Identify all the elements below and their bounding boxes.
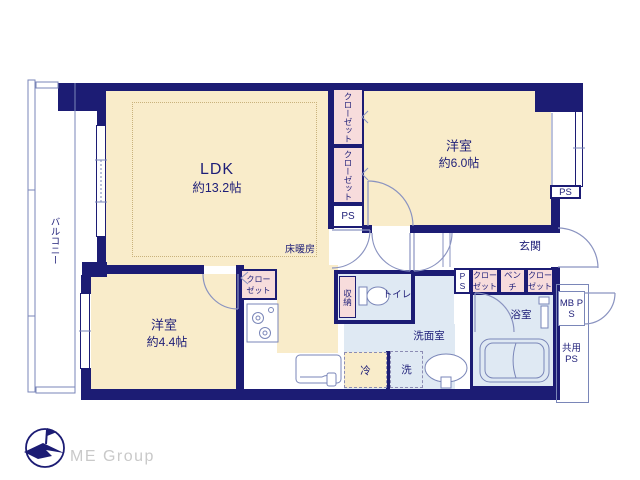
floor-plan: 収納 クローゼット クローゼット PS クローゼット PS クローゼット ベンチ… [0, 0, 640, 480]
washroom-floor-upper [415, 276, 454, 324]
closet-hall2-box: クローゼット [526, 268, 554, 294]
wall-top [58, 83, 583, 91]
wall-ldk-bottom [90, 265, 204, 274]
wall-hall-bottom [415, 270, 455, 276]
bedroom2-size-label: 約4.4帖 [147, 336, 188, 350]
ps-hall-box: PS [454, 268, 471, 294]
shared-ps-label: 共用PS [560, 340, 584, 365]
shared-ps-box: 共用PS [558, 335, 585, 370]
closet-kitchen-box: クローゼット [240, 269, 277, 300]
ps-hall-label: PS [458, 271, 468, 291]
logo-text: ME Group [70, 448, 155, 466]
window-bedroom1 [575, 111, 583, 187]
entrance-step-lines [443, 233, 450, 267]
ps-right-box: PS [550, 185, 581, 199]
wall-bottom [81, 389, 560, 400]
ps-right-label: PS [559, 187, 572, 198]
room-bathroom [470, 292, 556, 389]
closet-hall2-label: クローゼット [528, 270, 552, 292]
toilet-label: トイレ [383, 291, 412, 302]
entrance-label: 玄関 [519, 241, 541, 254]
storage-label: 収納 [342, 289, 354, 306]
ps-column-box: PS [332, 204, 364, 228]
floor-heating-zone [132, 102, 317, 257]
bench-box: ベンチ [499, 268, 526, 294]
ldk-size-label: 約13.2帖 [192, 181, 241, 195]
bedroom2-name-label: 洋室 [151, 319, 177, 334]
bedroom1-name-label: 洋室 [446, 140, 472, 155]
washer-label: 洗 [401, 362, 412, 377]
floor-heating-label: 床暖房 [285, 244, 315, 256]
toilet-storage-box: 収納 [339, 276, 356, 318]
wall-left-upper [97, 91, 106, 126]
closet-v1-label: クローゼット [342, 92, 354, 143]
closet-kitchen-label: クローゼット [244, 274, 274, 296]
fridge-space: 冷 [344, 352, 387, 388]
wall-below-bedroom1-b [410, 225, 560, 233]
ldk-name-label: LDK [200, 161, 234, 179]
fridge-label: 冷 [360, 363, 371, 378]
window-ldk [96, 125, 106, 237]
mb-ps-box: MB PS [558, 291, 585, 326]
closet-column-top: クローゼット [332, 88, 364, 146]
bathroom-label: 浴室 [511, 309, 532, 321]
wall-corner-topright [535, 83, 583, 112]
closet-hall1-label: クローゼット [473, 270, 497, 292]
compass-logo-icon [24, 428, 64, 467]
balcony-label: バルコニー [48, 217, 59, 265]
window-bedroom2 [80, 293, 90, 369]
closet-column-bottom: クローゼット [332, 146, 364, 204]
kitchen-sink-floor [277, 353, 344, 390]
mb-ps-label: MB PS [560, 298, 584, 320]
kitchen-counter-floor [244, 298, 277, 390]
closet-hall1-box: クローゼット [471, 268, 499, 294]
bedroom1-size-label: 約6.0帖 [439, 157, 480, 171]
washroom-label: 洗面室 [413, 330, 445, 342]
washer-space: 洗 [390, 351, 423, 388]
ps-column-label: PS [341, 211, 354, 222]
wall-left-lower-a [81, 275, 91, 294]
closet-v2-label: クローゼット [342, 150, 354, 201]
bench-label: ベンチ [501, 269, 524, 293]
